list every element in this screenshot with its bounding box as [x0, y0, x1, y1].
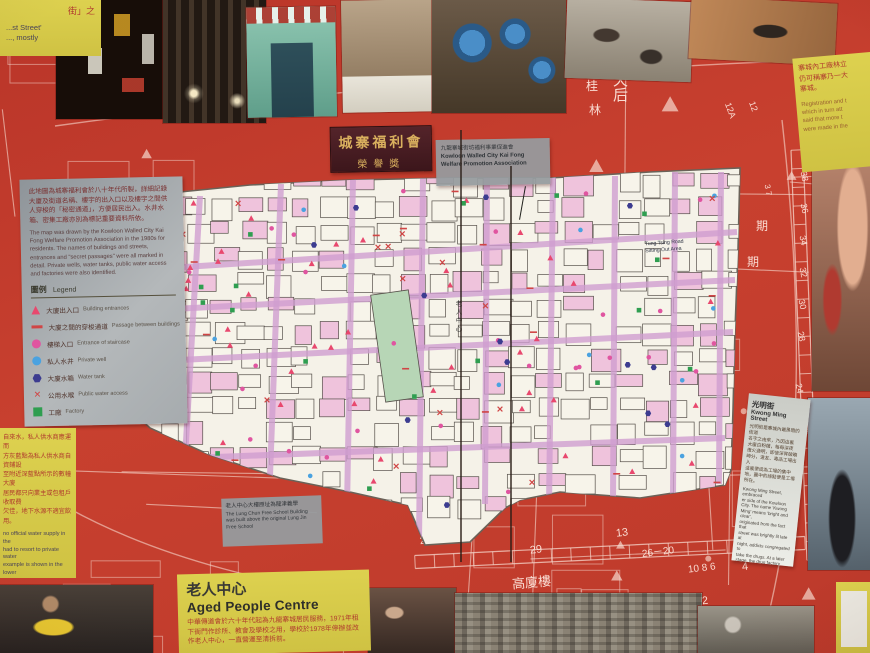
legend-label-zh: 大廈出入口	[46, 304, 79, 315]
panel-joint-line	[510, 166, 512, 562]
photo-barber-shop	[565, 0, 694, 82]
legend-label-zh: 樓梯入口	[47, 338, 74, 349]
photo-home-worker	[812, 163, 870, 391]
photo-clinic-interior	[341, 0, 435, 113]
legend-label-en: Water tank	[78, 374, 105, 381]
top-left-zh-fragment: 街」之	[6, 4, 95, 17]
water-en-text: no official water supply in the had to r…	[3, 531, 72, 578]
photo-sewing-machine	[808, 398, 870, 570]
legend-item: ✕公用水喉Public water access	[33, 387, 178, 400]
legend-label-en: Private well	[78, 357, 107, 364]
circle-marker-icon	[32, 340, 41, 349]
photo-dental-shopfront	[246, 6, 337, 118]
plaque-line2: 榮譽獎	[331, 154, 431, 171]
sitting-out-area-label: Tung Tsing Road Sitting Out Area	[645, 239, 685, 255]
association-name-zh: 九龍寨城街坊福利事業促進會	[441, 142, 545, 152]
bottom-right-panel	[836, 582, 870, 653]
bottom-right-panel-inset	[841, 591, 867, 647]
free-school-caption: 老人中心大樓原址為龍津義學 The Lung Chun Free School …	[221, 495, 323, 546]
legend-label-zh: 私人水井	[47, 355, 74, 366]
aged-centre-text-zh: 中華傳道會於六十年代起為九龍寨城居民服務，1971年租下衙門作診所、教會及學校之…	[187, 614, 362, 647]
cross-marker-icon: ✕	[33, 391, 42, 400]
legend-item: 私人水井Private well	[32, 353, 177, 366]
association-name-label: 九龍寨城街坊福利事業促進會 Kowloon Walled City Kai Fo…	[436, 138, 551, 186]
legend-label-zh: 公用水喉	[48, 389, 75, 400]
legend-intro-zh: 此地圖為城寨福利會於八十年代所製，詳細記錄大廈及街道名稱、樓宇的出入口以及樓宇之…	[29, 185, 175, 226]
legend-header-en: Legend	[53, 286, 77, 293]
legend-item: 大廈水箱Water tank	[32, 370, 177, 383]
photo-walled-city-facade	[455, 593, 702, 653]
photo-market-man	[0, 585, 153, 653]
legend-panel: 此地圖為城寨福利會於八十年代所製，詳細記錄大廈及街道名稱、樓宇的出入口以及樓宇之…	[19, 176, 187, 426]
water-supply-text-panel: 自來水，私人供水商應運而 方灰藍點為私人供水商自資鋪設 至附近深藍點所示的數幢大…	[0, 428, 76, 578]
triangle-marker-icon	[31, 306, 40, 315]
factories-en-text: Registration and t which in turn att sai…	[801, 95, 870, 134]
aged-people-centre-panel: 老人中心 Aged People Centre 中華傳道會於六十年代起為九龍寨城…	[177, 570, 371, 653]
legend-label-zh: 大廈之間的穿梭通道	[48, 321, 108, 332]
legend-header: 圖例 Legend	[31, 281, 176, 298]
legend-list: 大廈出入口Building entrances大廈之間的穿梭通道Passage …	[31, 302, 178, 417]
circle-marker-icon	[32, 357, 41, 366]
dash-marker-icon	[31, 326, 42, 329]
legend-label-en: Entrance of staircase	[77, 339, 130, 346]
legend-label-en: Factory	[65, 408, 84, 414]
legend-item: 工廠Factory	[33, 404, 178, 417]
legend-label-zh: 工廠	[48, 407, 61, 417]
association-name-en: Kowloon Walled City Kai Fong Welfare Pro…	[441, 152, 545, 169]
kwong-ming-zh-text: 光明街是寨城內最黑暗的街道 名字之由來，乃因這裏 大廈白粉檔，每每深夜 燈火通明…	[744, 423, 804, 488]
top-left-text-panel: 街」之 ...st Street' ..., mostly	[0, 0, 101, 56]
exhibit-board: 天后桂桂林龍2212A12期期3 73836343230282418–16292…	[0, 0, 870, 653]
aged-centre-title-en: Aged People Centre	[187, 596, 361, 616]
square-marker-icon	[33, 408, 42, 417]
legend-header-zh: 圖例	[31, 285, 47, 294]
kwong-ming-en-text: Kwong Ming Street, embraced er side of t…	[731, 486, 797, 567]
factories-text-panel: 寨城內工廠林立 仍可稱寨乃一大 寨城。 Registration and t w…	[792, 52, 870, 172]
legend-item: 樓梯入口Entrance of staircase	[32, 336, 177, 349]
top-left-en-fragment: ...st Street' ..., mostly	[6, 23, 95, 43]
water-zh-text: 自來水，私人供水商應運而 方灰藍點為私人供水商自資鋪設 至附近深藍點所示的數幢大…	[3, 433, 72, 526]
legend-item: 大廈之間的穿梭通道Passage between buildings	[31, 319, 176, 332]
legend-label-zh: 大廈水箱	[47, 372, 74, 383]
factories-zh-text: 寨城內工廠林立 仍可稱寨乃一大 寨城。	[798, 58, 868, 95]
photo-priest	[368, 588, 456, 653]
legend-intro-en: The map was drawn by the Kowloon Walled …	[29, 227, 175, 279]
photo-elderly-eating	[698, 606, 814, 653]
photo-factory-fans	[432, 0, 566, 113]
legend-label-en: Building entrances	[83, 305, 129, 312]
panel-joint-line	[460, 130, 462, 562]
legend-item: 大廈出入口Building entrances	[31, 302, 176, 315]
free-school-caption-en: The Lung Chun Free School Building was b…	[226, 508, 319, 530]
legend-label-en: Passage between buildings	[112, 321, 180, 328]
legend-label-en: Public water access	[78, 390, 128, 397]
hexagon-marker-icon	[32, 374, 41, 383]
plaque-line1: 城寨福利會	[331, 131, 431, 153]
welfare-association-plaque: 城寨福利會 榮譽獎	[330, 125, 433, 173]
